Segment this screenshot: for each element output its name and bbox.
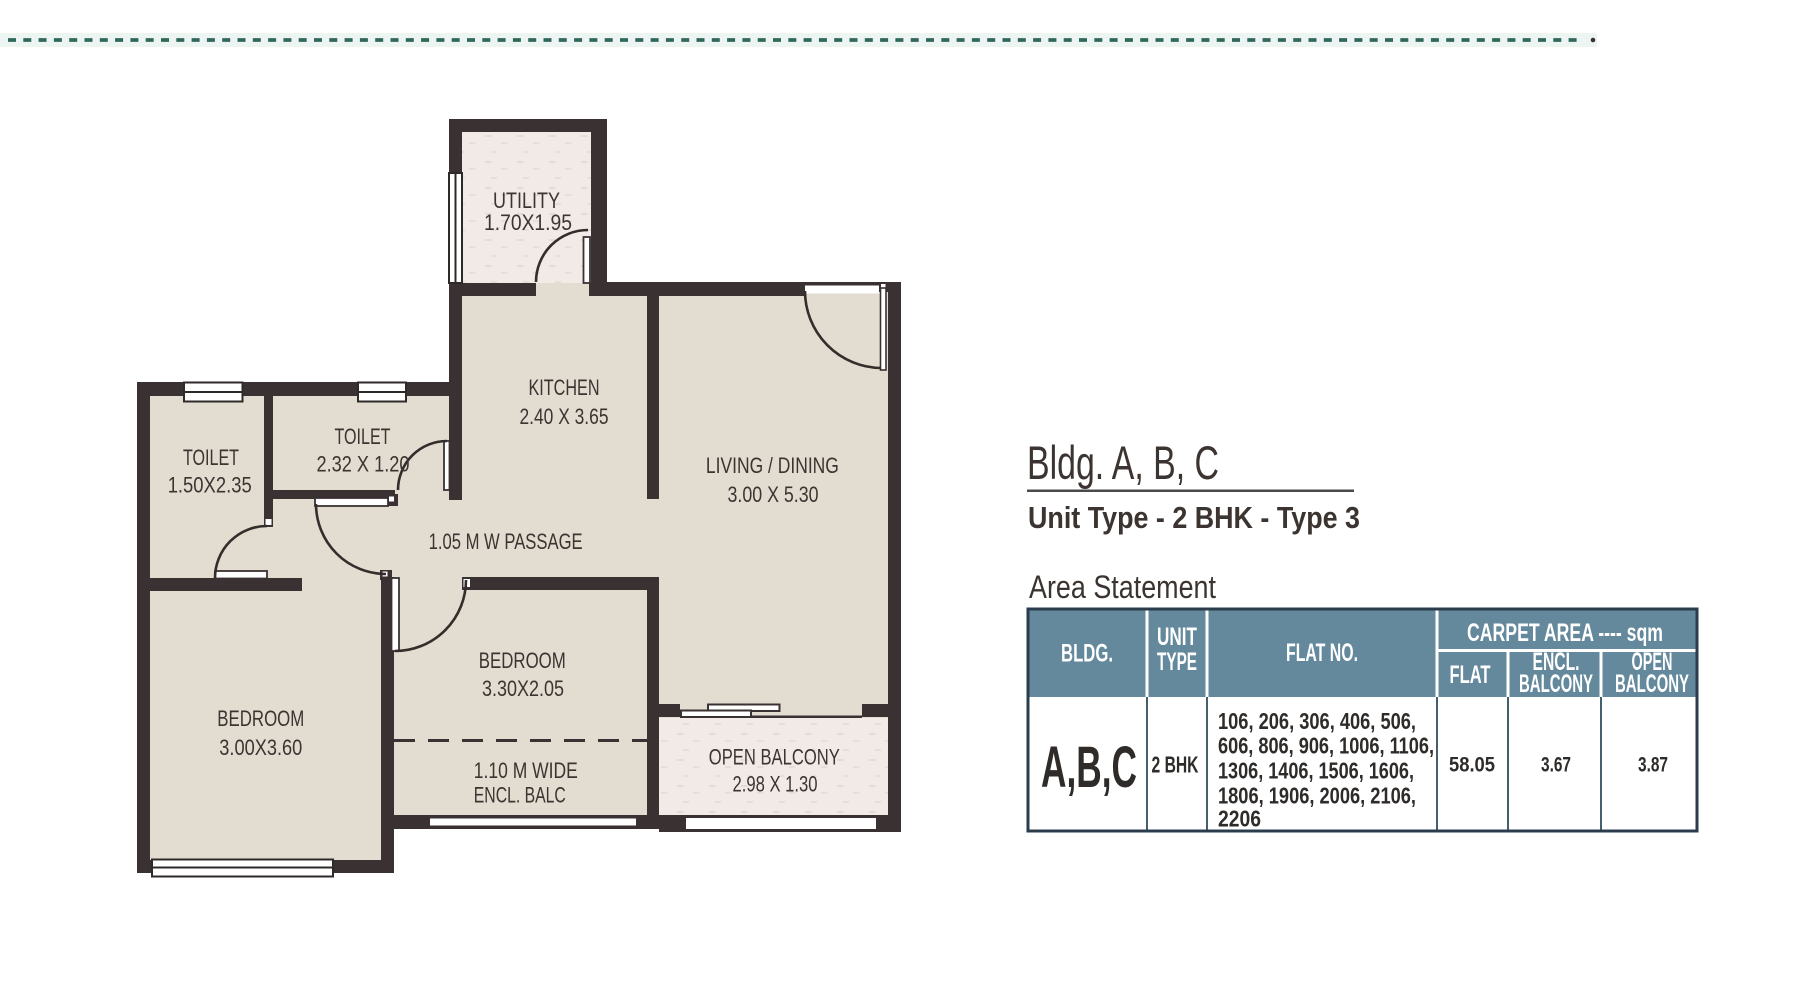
svg-text:ENCL. BALC: ENCL. BALC [474, 783, 566, 808]
svg-text:1.05 M W PASSAGE: 1.05 M W PASSAGE [429, 529, 583, 554]
svg-text:3.87: 3.87 [1638, 753, 1668, 777]
svg-text:3.67: 3.67 [1541, 753, 1571, 777]
svg-text:BEDROOM: BEDROOM [217, 706, 304, 731]
svg-text:58.05: 58.05 [1449, 753, 1495, 777]
svg-text:BLDG.: BLDG. [1061, 640, 1113, 668]
svg-text:BEDROOM: BEDROOM [479, 648, 566, 673]
svg-text:2206: 2206 [1218, 806, 1261, 832]
svg-text:2.98 X 1.30: 2.98 X 1.30 [733, 772, 818, 797]
svg-text:KITCHEN: KITCHEN [529, 375, 600, 400]
svg-text:606, 806, 906, 1006, 1106,: 606, 806, 906, 1006, 1106, [1218, 733, 1434, 759]
svg-text:1306, 1406, 1506, 1606,: 1306, 1406, 1506, 1606, [1218, 758, 1414, 784]
svg-text:3.00 X 5.30: 3.00 X 5.30 [728, 482, 819, 507]
svg-text:UNIT: UNIT [1157, 623, 1197, 651]
svg-text:3.30X2.05: 3.30X2.05 [482, 676, 564, 701]
svg-text:106, 206, 306, 406, 506,: 106, 206, 306, 406, 506, [1218, 708, 1416, 734]
svg-text:BALCONY: BALCONY [1519, 670, 1593, 698]
svg-text:CARPET AREA ---- sqm: CARPET AREA ---- sqm [1467, 619, 1663, 647]
svg-text:TOILET: TOILET [335, 424, 391, 449]
svg-text:A,B,C: A,B,C [1041, 735, 1137, 800]
svg-text:1.10 M WIDE: 1.10 M WIDE [474, 758, 578, 783]
svg-text:2.32 X 1.20: 2.32 X 1.20 [317, 452, 410, 477]
svg-text:TYPE: TYPE [1157, 648, 1197, 676]
svg-text:Area Statement: Area Statement [1029, 569, 1216, 605]
svg-text:2 BHK: 2 BHK [1152, 752, 1199, 778]
svg-text:FLAT NO.: FLAT NO. [1286, 639, 1358, 667]
svg-text:Unit Type - 2 BHK - Type 3: Unit Type - 2 BHK - Type 3 [1028, 500, 1360, 535]
svg-text:2.40 X 3.65: 2.40 X 3.65 [520, 404, 609, 429]
svg-text:3.00X3.60: 3.00X3.60 [219, 735, 302, 760]
svg-text:LIVING / DINING: LIVING / DINING [706, 453, 839, 478]
svg-text:FLAT: FLAT [1450, 661, 1491, 689]
svg-text:TOILET: TOILET [183, 445, 239, 470]
svg-text:1.50X2.35: 1.50X2.35 [168, 473, 252, 498]
svg-text:1.70X1.95: 1.70X1.95 [484, 210, 572, 235]
svg-text:BALCONY: BALCONY [1615, 670, 1689, 698]
svg-text:OPEN BALCONY: OPEN BALCONY [709, 745, 840, 770]
svg-text:Bldg. A, B, C: Bldg. A, B, C [1027, 436, 1219, 489]
